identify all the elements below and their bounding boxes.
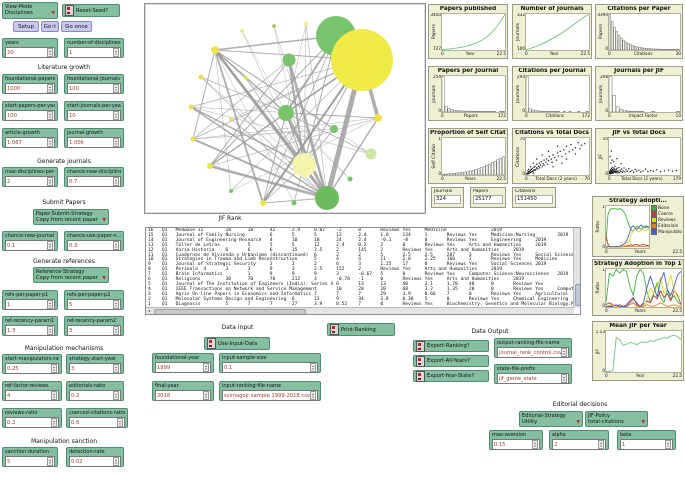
plot-strategy-adoption-top10: Strategy Adoption in Top 10 1Ratio0 0Yea…: [592, 259, 684, 316]
stepper[interactable]: [47, 300, 53, 309]
final-year-input[interactable]: final-year 2018: [152, 381, 214, 401]
section-manipulation-sanction: Manipulation sanction: [0, 438, 128, 445]
chance-use-paper-network-input[interactable]: chance-use-paper-n... 0.3: [64, 231, 124, 251]
use-input-data-switch[interactable]: Use-Input-Data: [204, 337, 270, 350]
stepper[interactable]: [117, 418, 123, 427]
toggle-icon: [330, 324, 339, 335]
refs-per-paper-p1-input[interactable]: refs-per-paper-p1 1: [2, 290, 58, 310]
citations-monitor: Citations 151450: [512, 187, 556, 208]
max-aversion-input[interactable]: max-aversion 0.15: [489, 430, 543, 450]
plot-strategy-adoption: Strategy adopti... 1Ratio0 NoneCoerceRev…: [592, 196, 684, 257]
ref-recency-param1-input[interactable]: ref-recency-param1 1.3: [2, 316, 58, 336]
forever-icon: [51, 24, 56, 30]
print-ranking-switch[interactable]: Print-Ranking: [327, 323, 395, 336]
stepper[interactable]: [665, 440, 671, 449]
jif-rank-title: JIF Rank: [160, 216, 300, 222]
jif-rank-rows: 16 Q1 Medwave 11 18 18 42 2.9 0.07 -2 0 …: [146, 228, 580, 309]
strategy-start-year-input[interactable]: strategy-start-year 3: [66, 354, 124, 374]
journal-growth-input[interactable]: journal-growth 1.006: [64, 128, 124, 148]
citation-network: [145, 4, 425, 213]
section-generate-journals: Generate journals: [0, 158, 128, 165]
section-editorial-decisions: Editorial decisions: [520, 401, 640, 408]
stepper[interactable]: [113, 48, 119, 57]
detection-rate-input[interactable]: detection-rate 0.02: [66, 447, 124, 467]
stepper[interactable]: [47, 84, 53, 93]
stepper[interactable]: [598, 440, 604, 449]
reviews-ratio-input[interactable]: reviews-ratio 0.2: [2, 408, 62, 428]
ref-factor-reviews-input[interactable]: ref-factor-reviews 4: [2, 381, 62, 401]
plot-self-citations: Proportion of Self Citat... 1Self Citati…: [428, 128, 508, 184]
stepper[interactable]: [47, 111, 53, 120]
stepper[interactable]: [47, 326, 53, 335]
scrollbar-thumb[interactable]: [154, 309, 306, 315]
stepper[interactable]: [51, 364, 57, 373]
scrollbar-thumb[interactable]: [575, 284, 581, 306]
export-all-years-switch[interactable]: Export-All-Years?: [413, 355, 489, 367]
start-journals-per-year-input[interactable]: start-journals-per-year 10: [64, 101, 124, 121]
plot-number-of-journals: Number of Journals 332Journals100 0Year2…: [512, 4, 592, 59]
journals-monitor: Journals 324: [431, 187, 464, 208]
plot-jif-vs-total-docs: JIF vs Total Docs 10JIF0 0Total Docs (2 …: [595, 128, 683, 184]
stepper[interactable]: [51, 418, 57, 427]
vertical-scrollbar[interactable]: [573, 228, 580, 308]
stepper[interactable]: [113, 300, 119, 309]
toggle-icon: [416, 356, 425, 367]
stepper[interactable]: [113, 364, 119, 373]
paper-submit-strategy-chooser[interactable]: Paper-Submit-Strategy Copy from recent p…: [33, 209, 109, 225]
section-data-input: Data input: [190, 324, 285, 331]
toggle-icon: [207, 338, 216, 349]
stepper[interactable]: [113, 138, 119, 147]
stepper[interactable]: [113, 391, 119, 400]
section-generate-references: Generate references: [0, 258, 128, 265]
world-view: [144, 3, 426, 214]
foundational-papers-input[interactable]: foundational-papers 1000: [2, 74, 58, 94]
output-ranking-file-name-input[interactable]: output-ranking-file-name journal_rank_co…: [494, 338, 572, 358]
go-button[interactable]: Go: [41, 21, 59, 32]
stepper[interactable]: [47, 177, 53, 186]
stepper[interactable]: [561, 348, 567, 357]
jif-policy-chooser[interactable]: JIF-Policy total-citations: [585, 411, 648, 427]
stepper[interactable]: [310, 391, 316, 400]
stepper[interactable]: [47, 457, 53, 466]
stepper[interactable]: [113, 84, 119, 93]
number-of-disciplines-input[interactable]: number-of-disciplines 1: [64, 38, 124, 58]
refs-per-paper-p2-input[interactable]: refs-per-paper-p2 5: [64, 290, 124, 310]
editorial-strategy-chooser[interactable]: Editorial-Strategy Utility: [519, 411, 583, 427]
stepper[interactable]: [203, 391, 209, 400]
beta-input[interactable]: beta 1: [617, 430, 676, 450]
input-sample-size-input[interactable]: input-sample-size 0.1: [219, 353, 321, 373]
coerced-citations-ratio-input[interactable]: coerced-citations-ratio 0.6: [66, 408, 128, 428]
plot-mean-jif-per-year: Mean JIF per Year 1.13JIF0 0Year22.5: [592, 321, 684, 381]
plot-papers-per-journal: Papers per Journal 254Journals0 0Papers1…: [428, 66, 508, 121]
plot-papers-published: Papers published 23400Papers727 0Year22.…: [428, 4, 508, 59]
toggle-icon: [65, 5, 74, 16]
section-manipulation-mechanisms: Manipulation mechanisms: [0, 345, 128, 352]
reset-seed-switch[interactable]: Reset-Seed?: [62, 4, 120, 17]
section-submit-papers: Submit Papers: [0, 199, 128, 206]
stepper[interactable]: [47, 138, 53, 147]
plot-legend: NoneCoerceReviewsEditorialsManipulators: [650, 205, 682, 249]
plot-citations-per-paper: Citations per Paper 4390Papers0 0Citatio…: [595, 4, 683, 59]
stepper[interactable]: [113, 457, 119, 466]
stepper[interactable]: [203, 363, 209, 372]
alpha-input[interactable]: alpha 2: [549, 430, 609, 450]
max-disciplines-per-journal-input[interactable]: max-disciplines-per-j... 2: [2, 167, 58, 187]
go-once-button[interactable]: Go once: [61, 21, 92, 32]
plot-citations-per-journal: Citations per Journal 294Journals0 0Cita…: [512, 66, 592, 121]
scroll-left-arrow[interactable]: ◂: [146, 308, 152, 314]
chance-new-discipline-input[interactable]: chance-new-discipline 0.7: [64, 167, 124, 187]
years-slider[interactable]: years 20: [2, 38, 58, 58]
reference-strategy-chooser[interactable]: Reference-Strategy Copy from recent pape…: [33, 267, 109, 283]
stepper[interactable]: [310, 363, 316, 372]
horizontal-scrollbar[interactable]: ◂: [146, 307, 574, 314]
state-file-prefix-input[interactable]: state-file-prefix jif_game_state: [494, 364, 572, 384]
stepper[interactable]: [47, 241, 53, 250]
export-year-state-switch[interactable]: Export-Year-State?: [413, 370, 489, 382]
ref-recency-param2-input[interactable]: ref-recency-param2 3: [64, 316, 124, 336]
article-growth-input[interactable]: article-growth 1.067: [2, 128, 58, 148]
plot-citations-vs-total-docs: Citations vs Total Docs 70Citations0 0To…: [512, 128, 592, 184]
start-manipulators-ratio-input[interactable]: start-manipulators-ratio 0.25: [2, 354, 62, 374]
foundational-journals-input[interactable]: foundational-journals 100: [64, 74, 124, 94]
stepper[interactable]: [113, 326, 119, 335]
stepper[interactable]: [113, 177, 119, 186]
papers-monitor: Papers 25177: [470, 187, 506, 208]
toggle-icon: [416, 371, 425, 382]
stepper[interactable]: [113, 111, 119, 120]
stepper[interactable]: [51, 391, 57, 400]
stepper[interactable]: [113, 241, 119, 250]
sanction-duration-input[interactable]: sanction-duration 5: [2, 447, 58, 467]
section-data-output: Data Output: [455, 328, 525, 335]
chance-new-journal-input[interactable]: chance-new-journal 0.1: [2, 231, 58, 251]
start-papers-per-year-input[interactable]: start-papers-per-year 100: [2, 101, 58, 121]
stepper[interactable]: [47, 48, 53, 57]
plot-journals-per-jif: Journals per JIF 208Journals0 0Impact Fa…: [595, 66, 683, 121]
foundational-year-input[interactable]: foundational-year 1999: [152, 353, 214, 373]
view-mode-chooser[interactable]: View-Mode Disciplines: [2, 2, 58, 19]
editorials-ratio-input[interactable]: editorials-ratio 0.2: [66, 381, 124, 401]
input-ranking-file-name-input[interactable]: input-ranking-file-name scimagojr sample…: [219, 381, 321, 401]
stepper[interactable]: [532, 440, 538, 449]
export-ranking-switch[interactable]: Export-Ranking?: [413, 340, 489, 352]
toggle-icon: [416, 341, 425, 352]
setup-button[interactable]: Setup: [13, 21, 39, 32]
stepper[interactable]: [561, 374, 567, 383]
jif-rank-output: 16 Q1 Medwave 11 18 18 42 2.9 0.07 -2 0 …: [145, 227, 581, 315]
section-literature-growth: Literature growth: [0, 64, 128, 71]
